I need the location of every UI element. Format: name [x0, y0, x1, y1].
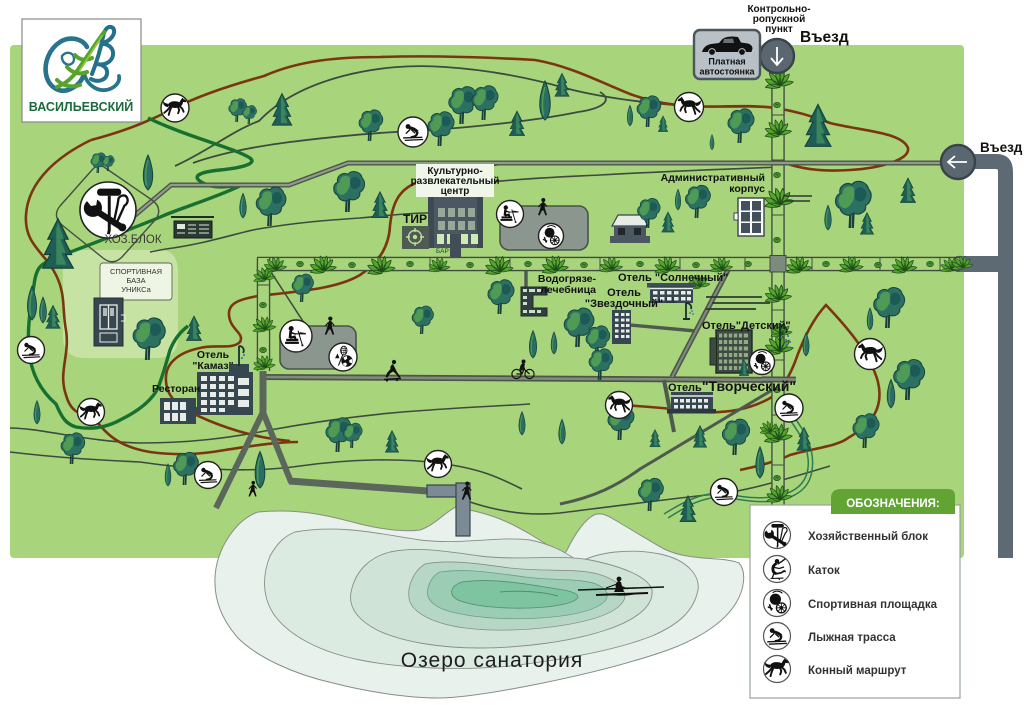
svg-text:Отель "Солнечный": Отель "Солнечный": [618, 272, 728, 284]
svg-text:Лыжная трасса: Лыжная трасса: [808, 632, 896, 644]
svg-text:БАР: БАР: [436, 248, 449, 255]
svg-text:лечебница: лечебница: [540, 284, 596, 296]
svg-text:Въезд: Въезд: [800, 29, 849, 46]
svg-text:ХОЗ.БЛОК: ХОЗ.БЛОК: [104, 234, 161, 246]
svg-text:Ресторан: Ресторан: [152, 383, 200, 395]
svg-text:Озеро санатория: Озеро санатория: [401, 649, 583, 672]
svg-text:центр: центр: [441, 186, 470, 197]
svg-text:"Звездочный": "Звездочный": [585, 298, 663, 310]
svg-text:автостоянка: автостоянка: [700, 67, 756, 77]
svg-text:СПОРТИВНАЯ: СПОРТИВНАЯ: [110, 267, 162, 276]
svg-text:корпус: корпус: [729, 183, 765, 195]
svg-text:Конный маршрут: Конный маршрут: [808, 665, 907, 677]
svg-text:ВАСИЛЬЕВСКИЙ: ВАСИЛЬЕВСКИЙ: [29, 99, 133, 114]
svg-text:ОБОЗНАЧЕНИЯ:: ОБОЗНАЧЕНИЯ:: [846, 498, 940, 510]
svg-text:Спортивная площадка: Спортивная площадка: [808, 599, 938, 611]
svg-text:Отель"Детский": Отель"Детский": [702, 320, 791, 332]
svg-text:Каток: Каток: [808, 565, 840, 577]
svg-text:ТИР: ТИР: [403, 212, 427, 226]
svg-text:Въезд: Въезд: [980, 140, 1023, 155]
svg-text:УНИКСа: УНИКСа: [121, 285, 151, 294]
svg-text:Платная: Платная: [708, 57, 745, 67]
svg-text:БАЗА: БАЗА: [126, 276, 145, 285]
svg-text:Хозяйственный блок: Хозяйственный блок: [808, 531, 928, 543]
svg-text:пункт: пункт: [765, 24, 793, 35]
svg-text:"Камаз": "Камаз": [192, 360, 233, 372]
